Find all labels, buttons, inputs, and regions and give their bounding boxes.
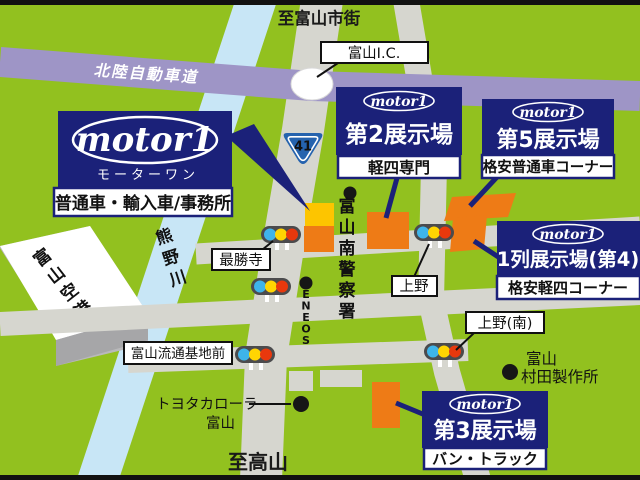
motor1-logo: motor1: [539, 227, 596, 243]
toyota-corolla-label-1: トヨタカローラ: [156, 396, 258, 413]
site4-sign: motor1 1列展示場(第4) 格安軽四コーナー: [474, 221, 640, 299]
site4-subtitle: 格安軽四コーナー: [508, 279, 628, 297]
gas-station-label: ENEOS: [301, 288, 310, 347]
murata-dot: [502, 364, 518, 380]
site3-title: 第3展示場: [433, 418, 536, 444]
motor1-logo: motor1: [370, 94, 427, 110]
ic-label: 富山I.C.: [348, 44, 401, 62]
ueno-south-label: 上野(南): [478, 315, 533, 332]
interchange-ellipse: [291, 68, 333, 100]
ueno-label: 上野: [400, 278, 429, 295]
site5-subtitle: 格安普通車コーナー: [483, 158, 614, 176]
road-stub-1: [289, 371, 313, 391]
letterbox-top: [0, 0, 640, 5]
site2-subtitle: 軽四専門: [368, 158, 430, 177]
site2-title: 第2展示場: [345, 121, 453, 148]
distribution-base-label: 富山流通基地前: [131, 345, 226, 362]
letterbox-bottom: [0, 475, 640, 480]
route-number: 41: [294, 140, 312, 155]
site3-subtitle: バン・トラック: [432, 450, 538, 468]
road-stub-2: [320, 370, 362, 387]
dealer-access-map: 富山空港 北陸自動車道 41: [0, 0, 640, 480]
motor1-kana: モーターワン: [97, 168, 199, 183]
murata-label-1: 富山: [526, 350, 557, 368]
toyota-corolla-dot: [293, 396, 309, 412]
site4-title: 1列展示場(第4): [497, 248, 639, 271]
murata-label-2: 村田製作所: [521, 368, 599, 386]
main-lot-yellow: [305, 203, 334, 226]
motor1-logo: motor1: [76, 120, 215, 160]
main-sign-subtitle: 普通車・輸入車/事務所: [55, 193, 231, 214]
motor1-logo: motor1: [456, 397, 513, 413]
temple-label: 最勝寺: [219, 252, 263, 269]
to-toyama-city-label: 至富山市街: [278, 8, 361, 28]
motor1-logo: motor1: [519, 105, 576, 121]
site5-title: 第5展示場: [496, 127, 599, 153]
to-takayama-label: 至高山: [228, 450, 288, 474]
toyota-corolla-label-2: 富山: [206, 414, 235, 432]
main-lot-orange: [304, 226, 334, 252]
